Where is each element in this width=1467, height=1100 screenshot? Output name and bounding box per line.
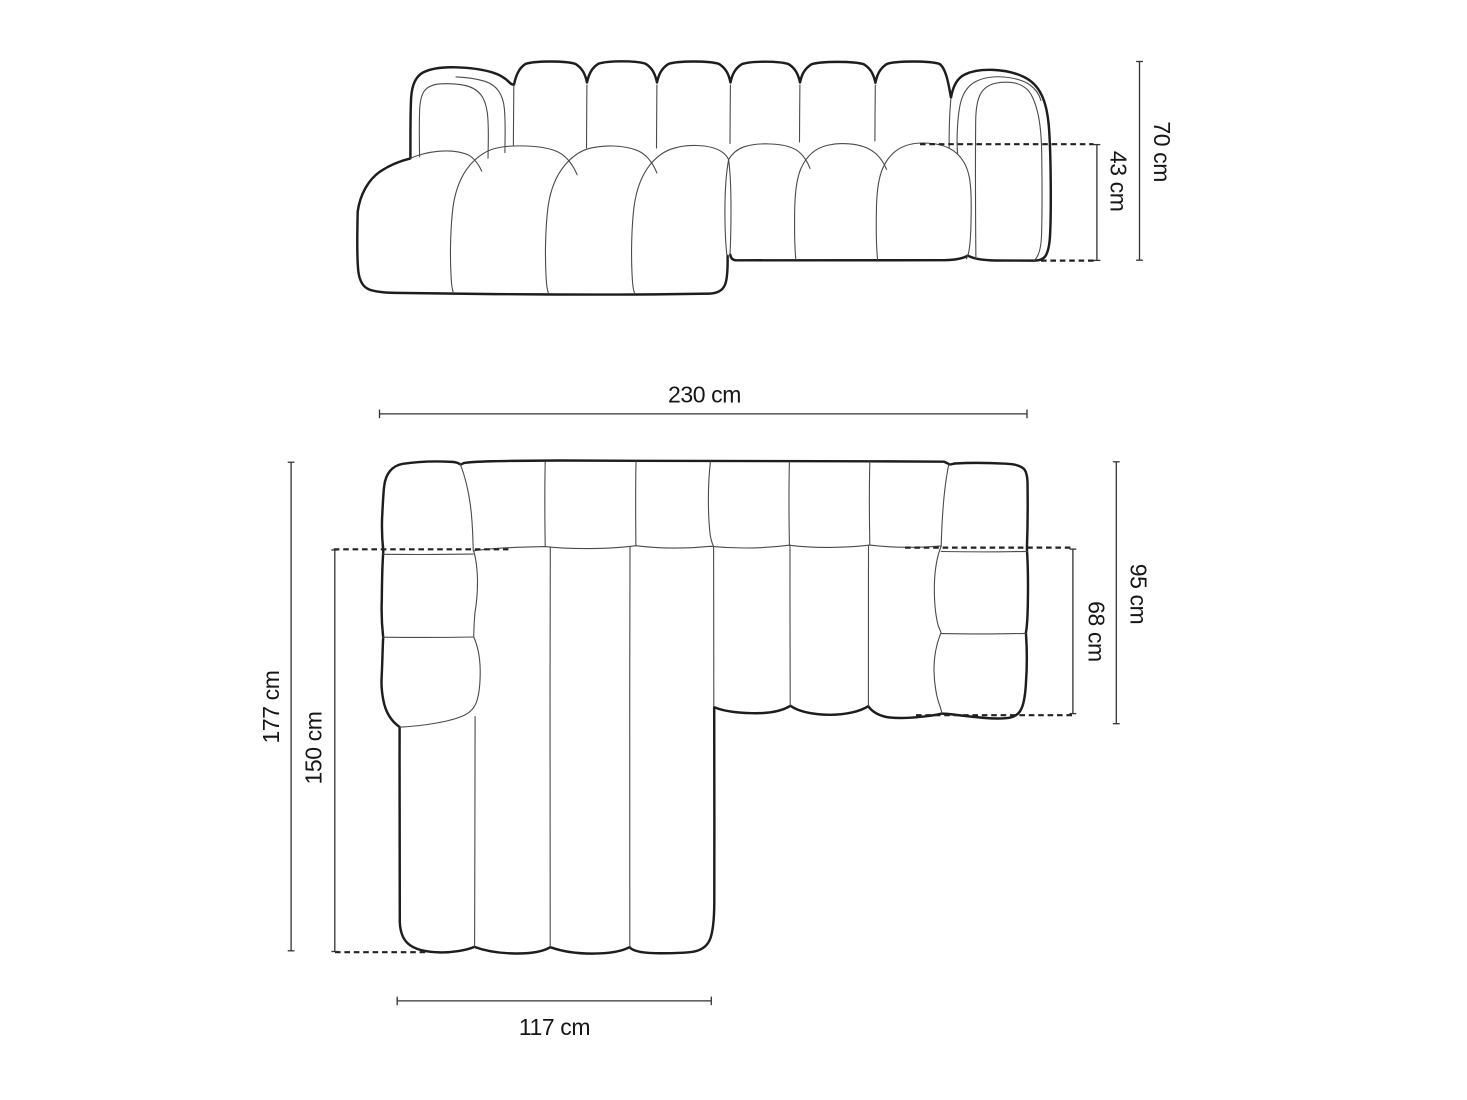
- svg-text:117 cm: 117 cm: [519, 1014, 590, 1040]
- svg-text:95 cm: 95 cm: [1126, 564, 1152, 625]
- svg-text:68 cm: 68 cm: [1084, 601, 1110, 662]
- svg-text:150 cm: 150 cm: [301, 711, 327, 784]
- svg-text:43 cm: 43 cm: [1105, 151, 1131, 212]
- svg-text:70 cm: 70 cm: [1149, 121, 1175, 182]
- svg-text:177 cm: 177 cm: [258, 670, 284, 743]
- svg-text:230 cm: 230 cm: [668, 382, 741, 408]
